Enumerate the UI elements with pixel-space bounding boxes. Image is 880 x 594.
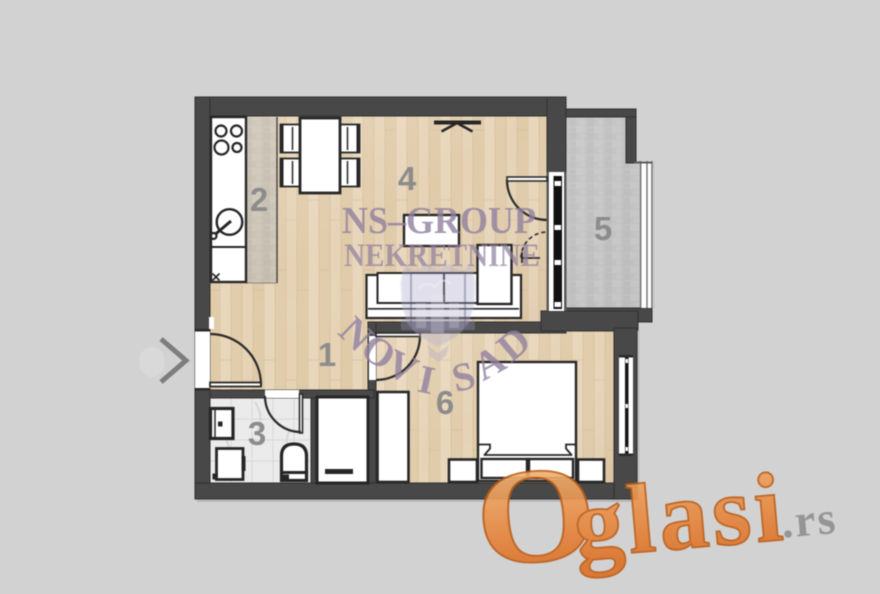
- svg-text:3: 3: [248, 415, 266, 452]
- svg-text:5: 5: [594, 210, 612, 247]
- svg-text:.rs: .rs: [779, 492, 839, 548]
- svg-text:NS–GROUP: NS–GROUP: [342, 200, 536, 242]
- svg-text:6: 6: [436, 384, 454, 421]
- svg-text:2: 2: [250, 181, 268, 218]
- svg-text:4: 4: [398, 160, 417, 197]
- svg-text:NEKRETNINE: NEKRETNINE: [344, 238, 540, 274]
- svg-text:glasi: glasi: [569, 453, 790, 580]
